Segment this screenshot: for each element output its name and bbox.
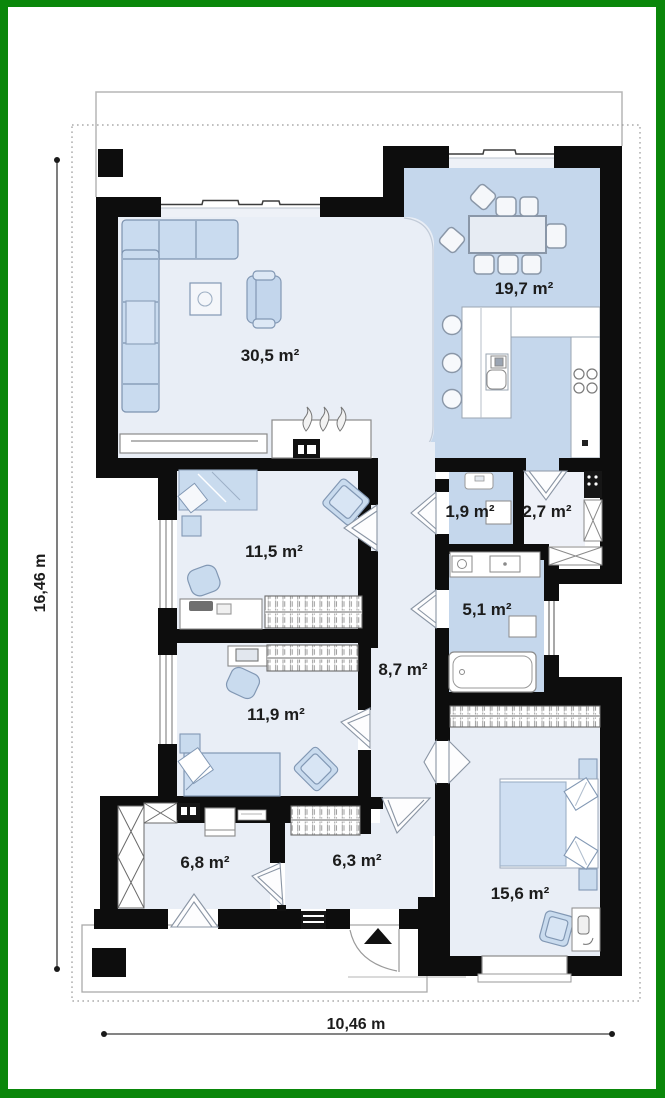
svg-text:30,5 m²: 30,5 m²: [241, 346, 300, 365]
svg-text:2,7 m²: 2,7 m²: [522, 502, 571, 521]
svg-text:15,6 m²: 15,6 m²: [491, 884, 550, 903]
svg-text:6,8 m²: 6,8 m²: [180, 853, 229, 872]
svg-text:1,9 m²: 1,9 m²: [445, 502, 494, 521]
svg-text:16,46 m: 16,46 m: [32, 554, 49, 613]
svg-text:11,9 m²: 11,9 m²: [247, 705, 305, 724]
svg-text:11,5 m²: 11,5 m²: [245, 542, 303, 561]
svg-text:8,7 m²: 8,7 m²: [378, 660, 427, 679]
svg-text:19,7 m²: 19,7 m²: [495, 279, 554, 298]
svg-text:10,46 m: 10,46 m: [327, 1016, 386, 1033]
svg-text:5,1 m²: 5,1 m²: [462, 600, 511, 619]
svg-text:6,3 m²: 6,3 m²: [332, 851, 381, 870]
